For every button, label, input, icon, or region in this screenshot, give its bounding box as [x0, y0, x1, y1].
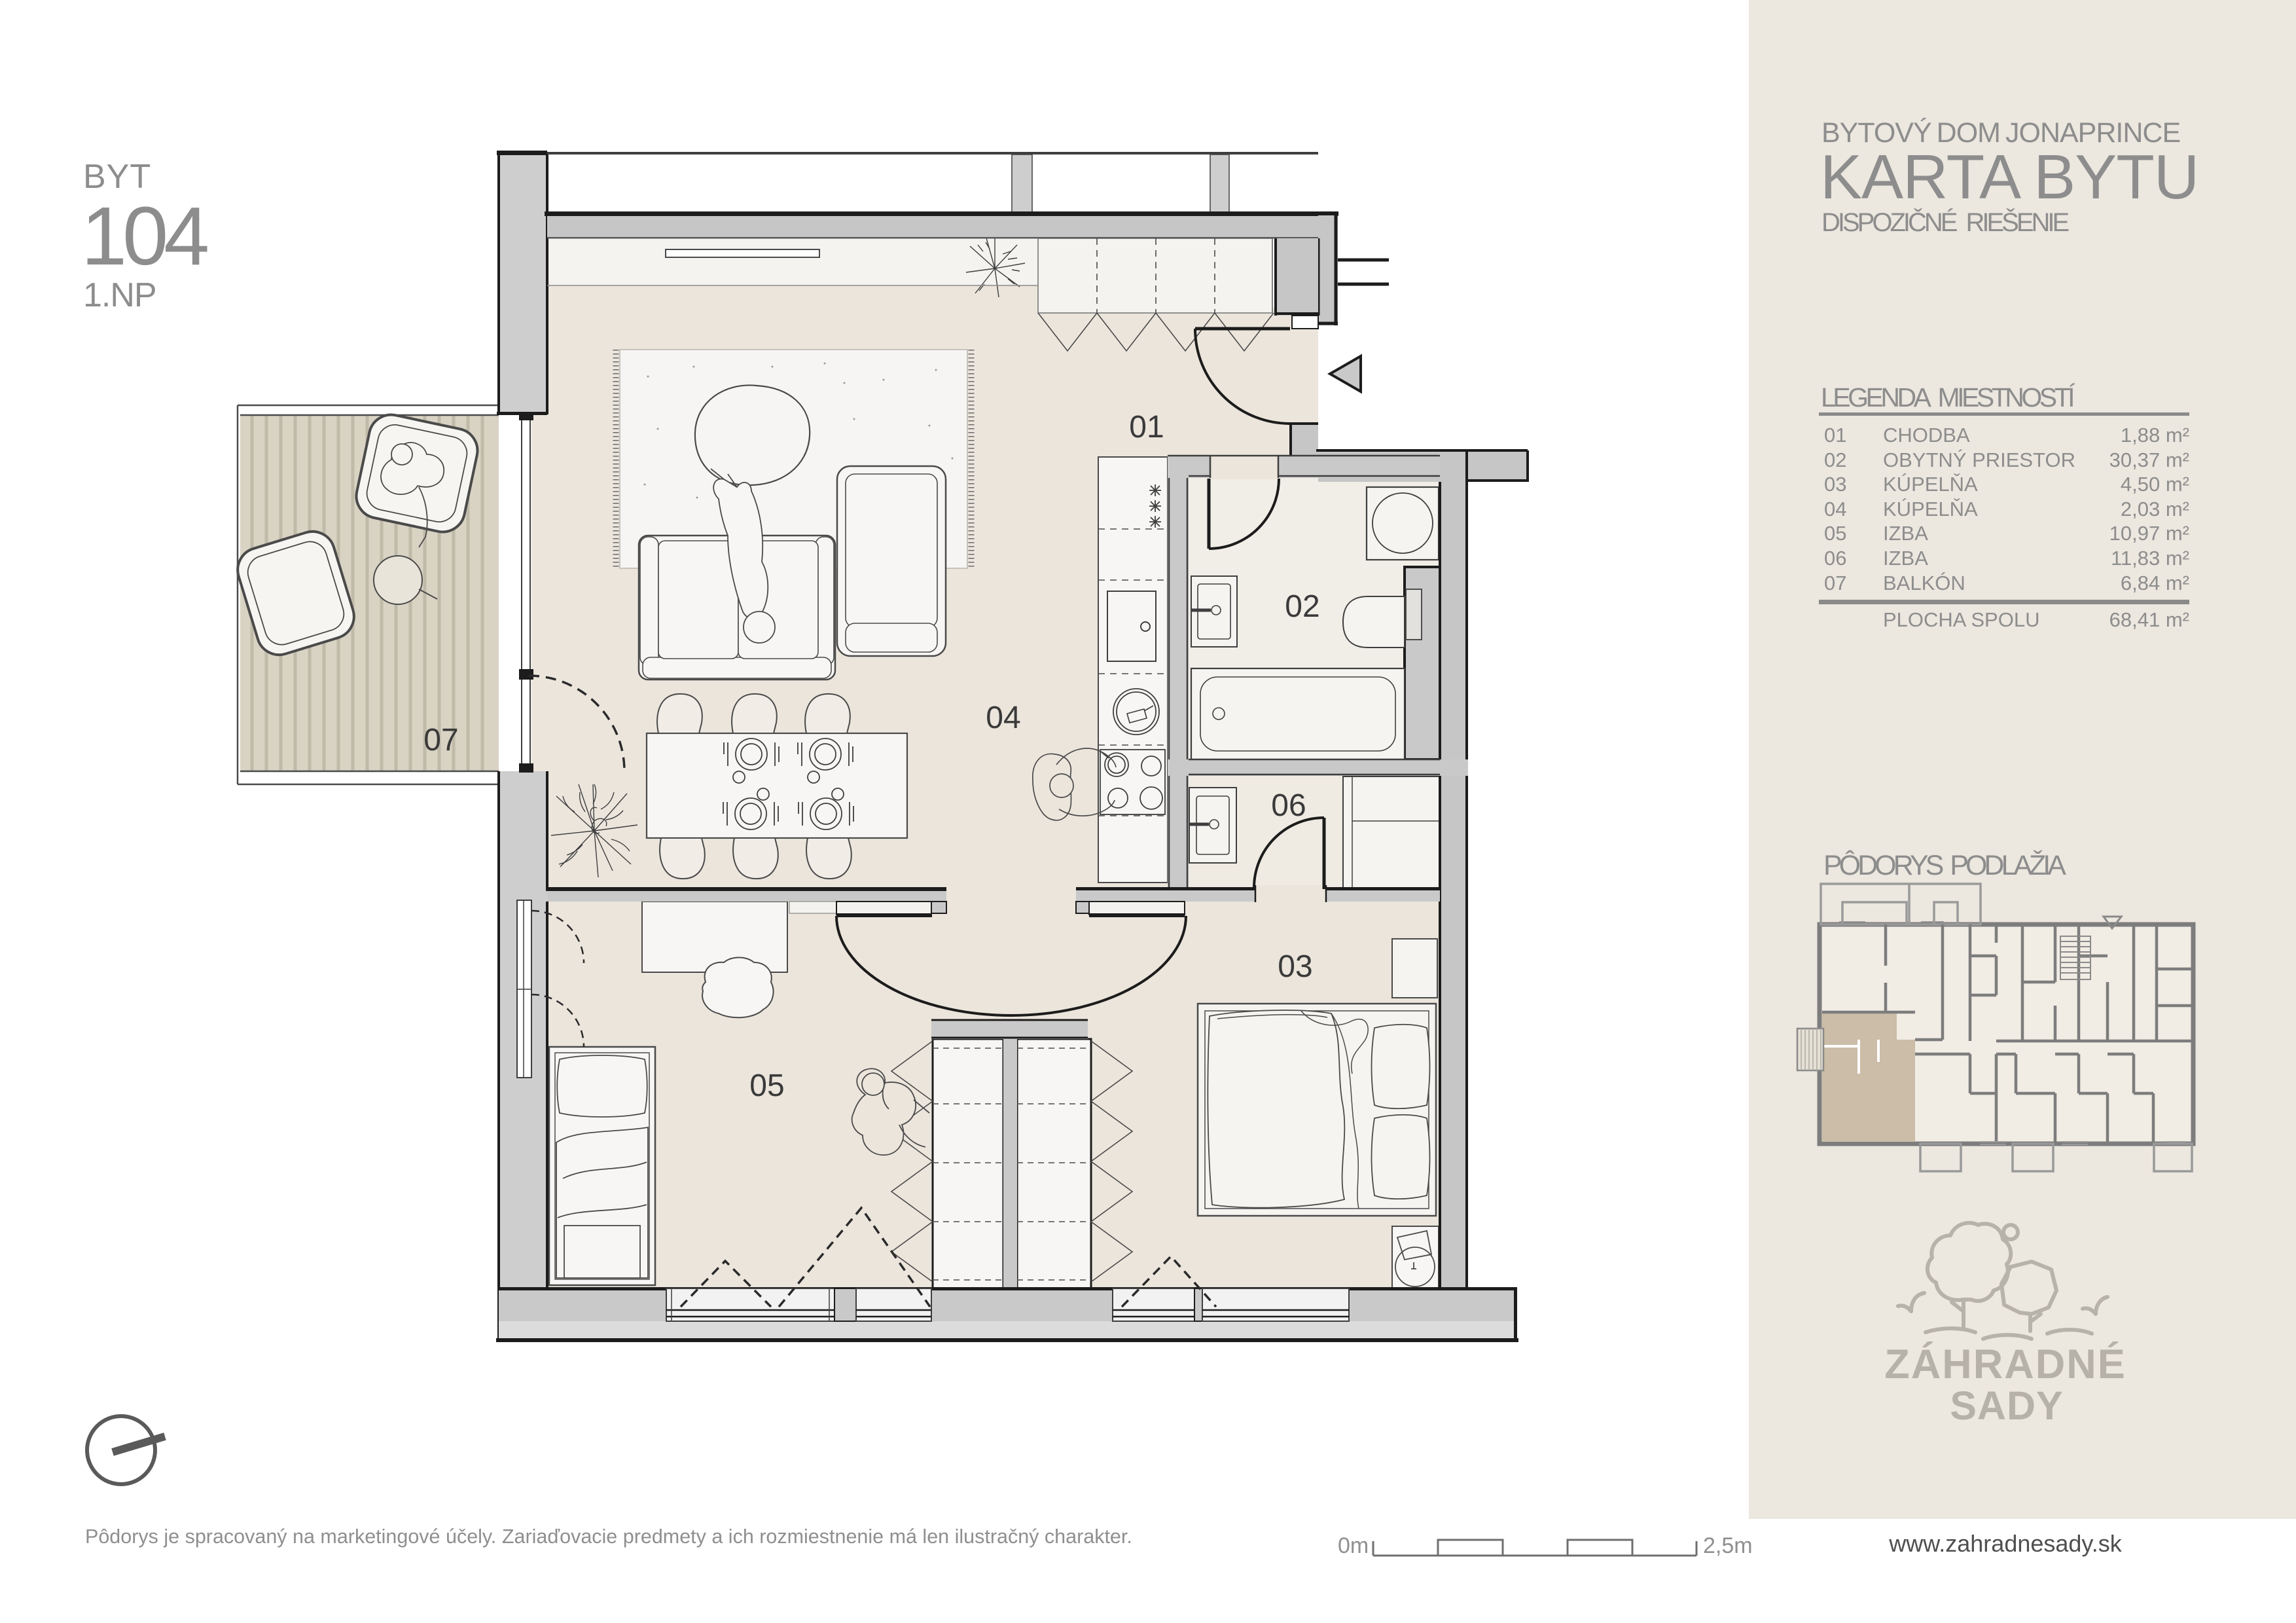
svg-text:01: 01	[1129, 410, 1164, 445]
svg-text:05: 05	[749, 1068, 784, 1103]
svg-text:06: 06	[1271, 788, 1306, 823]
svg-text:03: 03	[1278, 949, 1312, 984]
svg-text:0m: 0m	[1338, 1533, 1369, 1558]
svg-text:04: 04	[986, 701, 1020, 735]
svg-text:2,5m: 2,5m	[1703, 1533, 1753, 1558]
svg-text:07: 07	[423, 723, 458, 757]
svg-text:02: 02	[1285, 589, 1319, 624]
